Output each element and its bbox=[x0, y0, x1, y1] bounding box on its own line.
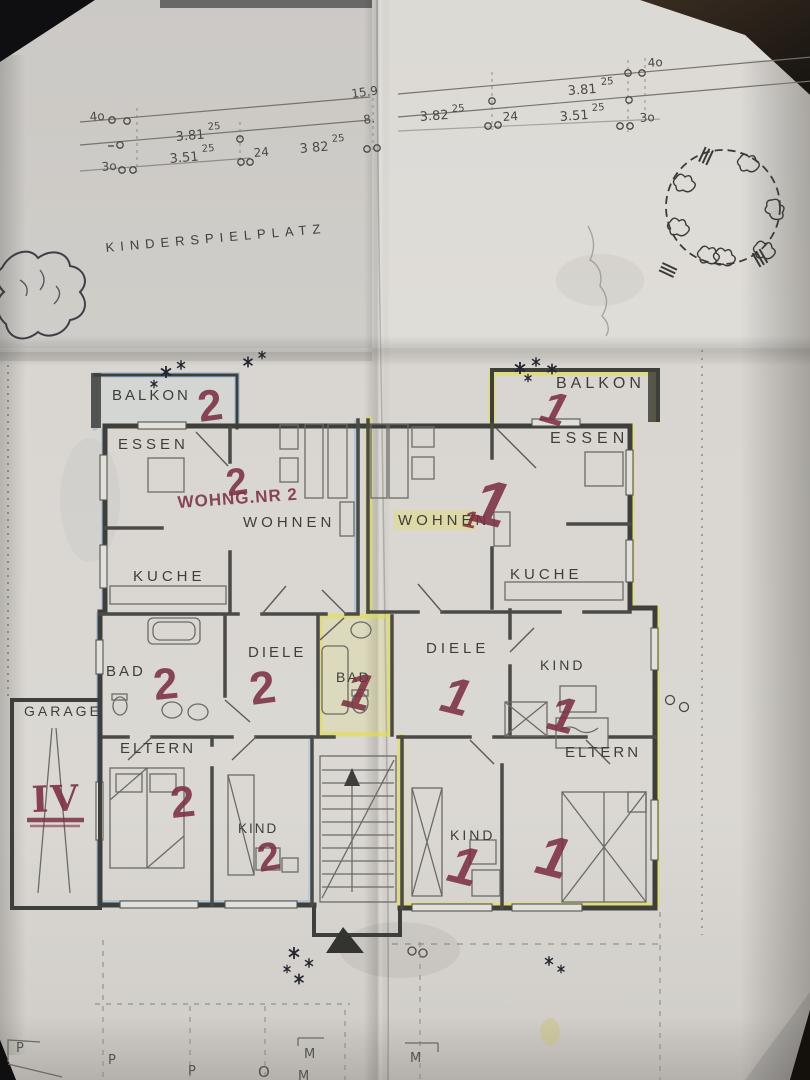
parking-letter-m3: M bbox=[410, 1051, 421, 1066]
dim-351-sup-left: 25 bbox=[201, 143, 215, 155]
mark-garage-roman: IV bbox=[27, 777, 84, 826]
garage-roman-numeral: IV bbox=[31, 777, 81, 821]
dim-382-right: 3.82 bbox=[419, 108, 449, 125]
label-kind-right-upper: KIND bbox=[540, 657, 585, 673]
label-diele-left: DIELE bbox=[248, 644, 306, 661]
dim-381-sup-left: 25 bbox=[207, 121, 221, 133]
dim-40-left: 4o bbox=[89, 109, 105, 124]
dim-30-left: 3o bbox=[101, 159, 117, 174]
parking-letter-m2: M bbox=[298, 1069, 309, 1080]
dim-382-sup-right: 25 bbox=[451, 103, 464, 115]
label-essen-right: ESSEN bbox=[550, 430, 629, 447]
parking-letter-p3: P bbox=[188, 1064, 196, 1079]
parking-letter-p2: P bbox=[108, 1053, 116, 1068]
label-eltern-left: ELTERN bbox=[120, 740, 196, 757]
dim-24-left: 24 bbox=[253, 145, 269, 160]
dim-40-right: 4o bbox=[647, 55, 663, 70]
label-bad-left: BAD bbox=[106, 663, 146, 680]
label-balkon-left: BALKON bbox=[112, 387, 191, 404]
dim-382-sup-left: 25 bbox=[331, 133, 345, 145]
parking-letter-m1: M bbox=[304, 1047, 315, 1062]
parking-letter-p1: P bbox=[16, 1041, 24, 1056]
label-kueche-left: KUCHE bbox=[133, 568, 206, 585]
dim-30-right: 3o bbox=[639, 110, 655, 125]
dim-381-sup-right: 25 bbox=[600, 76, 613, 88]
parking-letter-o: O bbox=[258, 1063, 270, 1080]
dim-24-right: 24 bbox=[502, 109, 518, 124]
dim-381-left: 3.81 bbox=[175, 128, 205, 145]
label-diele-right: DIELE bbox=[426, 640, 489, 657]
floor-plan-drawing: 4o 3o 3.81 25 3.51 25 24 3 82 25 15.9 8.… bbox=[0, 0, 810, 1080]
dim-351-sup-right: 25 bbox=[591, 102, 604, 114]
dim-381-right: 3.81 bbox=[567, 82, 597, 99]
mark-apt2-eltern: 2 bbox=[168, 777, 197, 828]
label-eltern-right: ELTERN bbox=[565, 744, 641, 761]
dim-total-8: 8. bbox=[362, 112, 375, 127]
label-garage: GARAGE bbox=[24, 703, 102, 719]
paper-sheet bbox=[0, 0, 810, 1080]
dim-351-left: 3.51 bbox=[169, 150, 199, 167]
photographed-floor-plan: 4o 3o 3.81 25 3.51 25 24 3 82 25 15.9 8.… bbox=[0, 0, 810, 1080]
label-kueche-right: KUCHE bbox=[510, 566, 583, 583]
label-essen-left: ESSEN bbox=[118, 436, 189, 453]
mark-apt2-bad: 2 bbox=[151, 659, 180, 710]
dim-351-right: 3.51 bbox=[559, 108, 589, 125]
label-wohnen-left: WOHNEN bbox=[243, 514, 335, 531]
dim-382-left: 3 82 bbox=[299, 140, 329, 157]
